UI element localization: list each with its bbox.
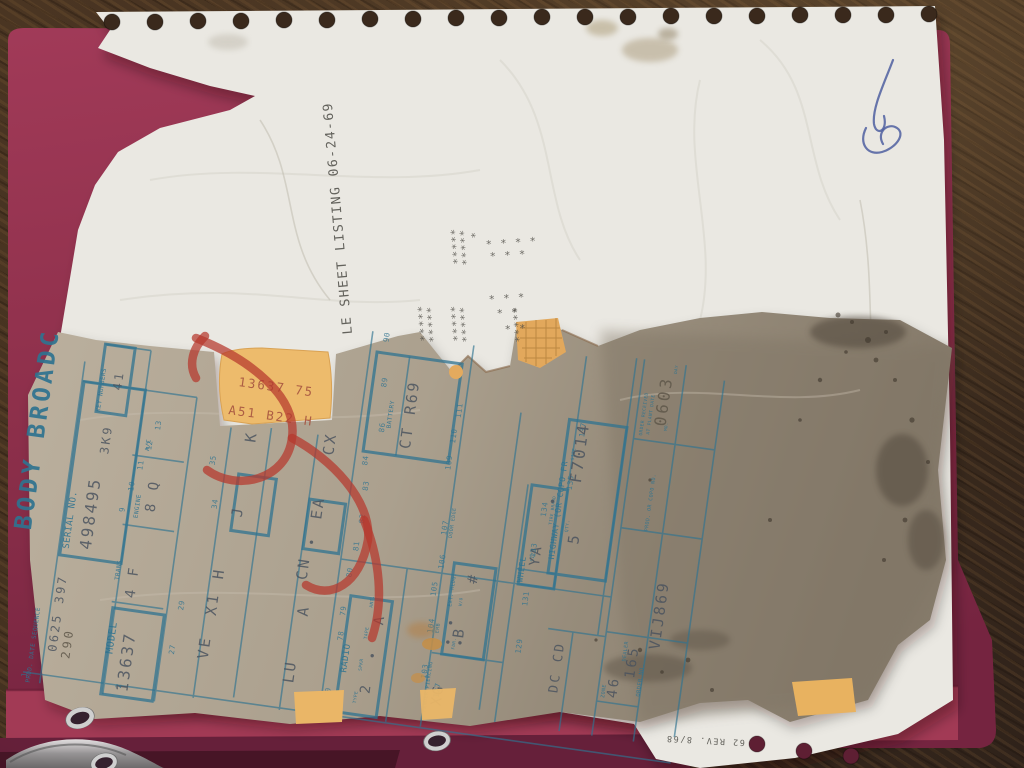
- stamp-text: CN: [293, 556, 314, 581]
- stamp-text: 12: [144, 440, 154, 451]
- stamp-text: 11: [135, 460, 145, 471]
- stamp-text: 13: [153, 420, 163, 431]
- stamp-text: * *: [496, 306, 519, 320]
- stamp-text: 46: [604, 675, 623, 699]
- stamp-text: •: [304, 535, 319, 547]
- stamp-text: 35: [208, 455, 218, 466]
- stamp-text: 34: [210, 498, 220, 509]
- stamp-text: 41: [110, 370, 127, 391]
- desk-photo: BODY BROADCSERIAL NO.498495KEY NUMBERS3K…: [0, 0, 1024, 768]
- stamp-text: 83: [361, 480, 371, 491]
- stamp-text: LU: [279, 659, 300, 684]
- stamp-text: •: [365, 649, 380, 661]
- stamp-text: 89: [379, 377, 389, 388]
- stamp-text: * * *: [489, 248, 526, 263]
- build-sheet: [28, 312, 956, 733]
- stamp-text: #: [465, 572, 482, 585]
- scene-svg: BODY BROADCSERIAL NO.498495KEY NUMBERS3K…: [0, 0, 1024, 768]
- stamp-text: EA: [307, 495, 328, 520]
- stamp-text: 81: [351, 540, 361, 551]
- stamp-text: VE: [194, 635, 215, 660]
- stamp-text: * *: [504, 322, 527, 336]
- stamp-text: * * *: [488, 291, 525, 306]
- stamp-text: *: [469, 230, 482, 238]
- stamp-text: 2: [357, 682, 374, 695]
- stamp-text: X1: [202, 591, 223, 616]
- stamp-text: 84: [360, 455, 370, 466]
- stamp-text: 29: [176, 600, 186, 611]
- stamp-text: 10: [126, 481, 136, 492]
- stamp-text: 78: [336, 630, 346, 641]
- stamp-text: 27: [167, 644, 177, 655]
- stamp-text: 90: [382, 332, 392, 343]
- stamp-text: 79: [338, 605, 348, 616]
- stamp-text: •: [453, 636, 468, 648]
- stamp-text: 86: [377, 422, 387, 433]
